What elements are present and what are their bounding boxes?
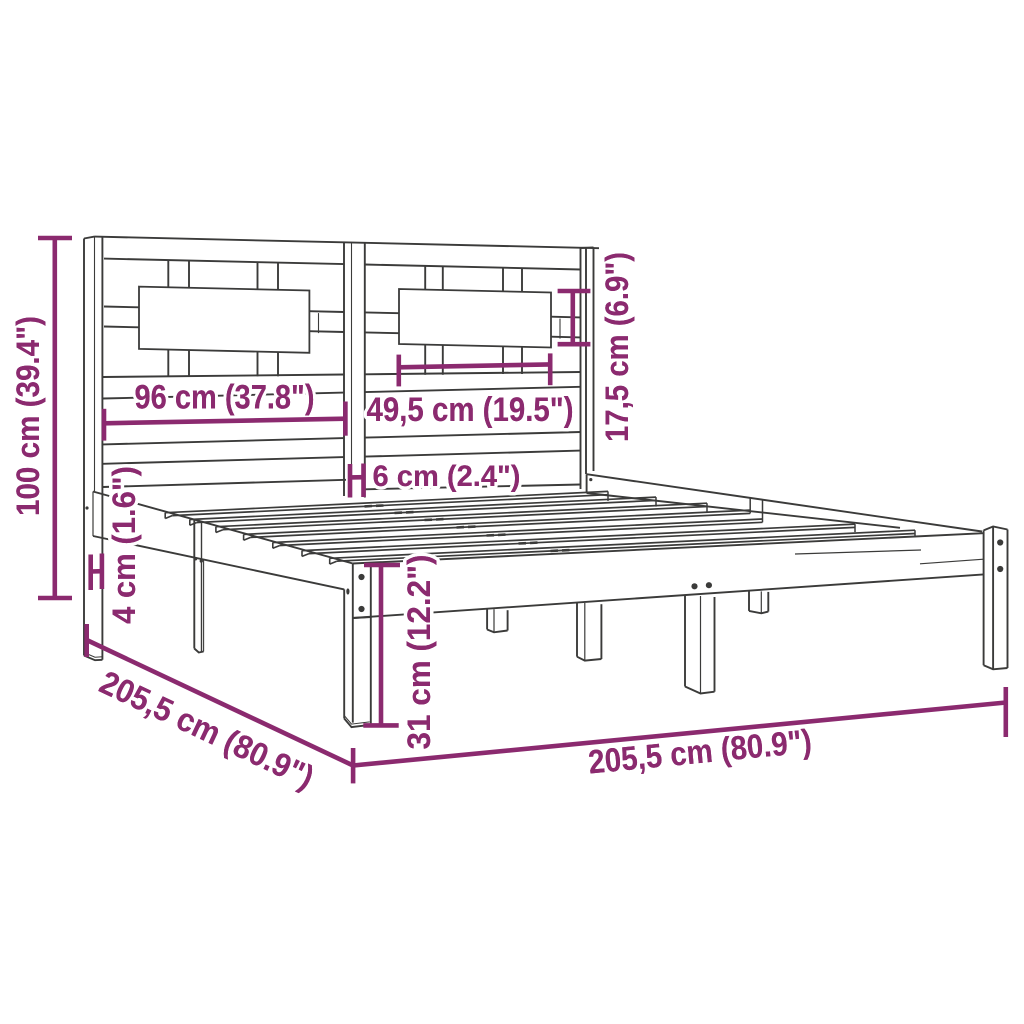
svg-text:49,5 cm (19.5"): 49,5 cm (19.5") (367, 391, 574, 429)
svg-text:17,5 cm (6.9"): 17,5 cm (6.9") (599, 252, 635, 442)
svg-text:96 cm (37.8"): 96 cm (37.8") (135, 379, 315, 417)
svg-text:6 cm (2.4"): 6 cm (2.4") (373, 460, 521, 493)
svg-text:205,5 cm (80.9"): 205,5 cm (80.9") (94, 663, 320, 796)
svg-text:31 cm (12.2"): 31 cm (12.2") (401, 555, 437, 750)
svg-text:4 cm (1.6"): 4 cm (1.6") (106, 466, 142, 624)
svg-text:100 cm (39.4"): 100 cm (39.4") (10, 316, 46, 516)
